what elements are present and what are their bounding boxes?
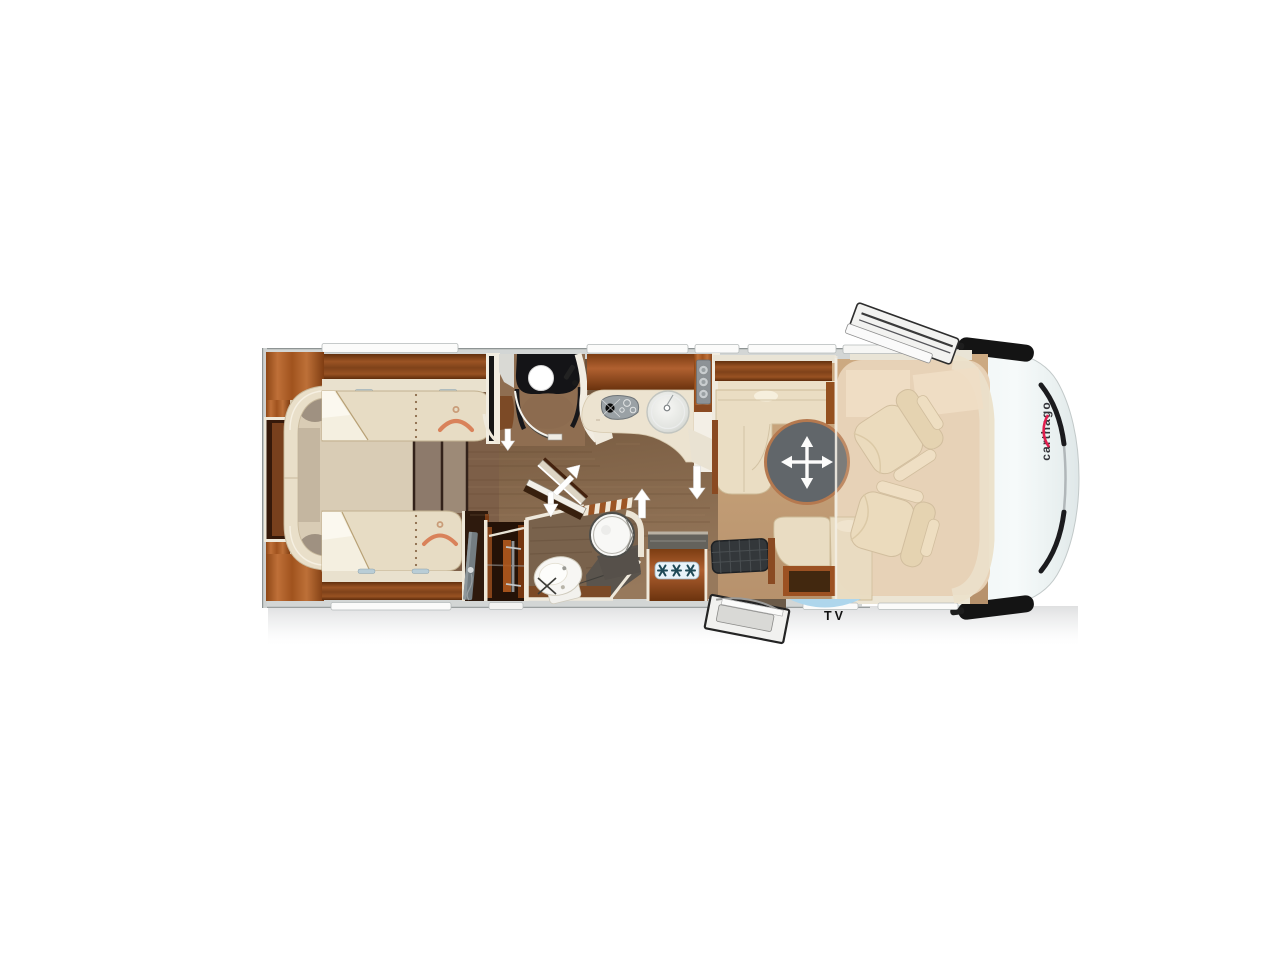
svg-text:carthago: carthago (1039, 401, 1053, 460)
svg-text:TV: TV (824, 609, 846, 623)
